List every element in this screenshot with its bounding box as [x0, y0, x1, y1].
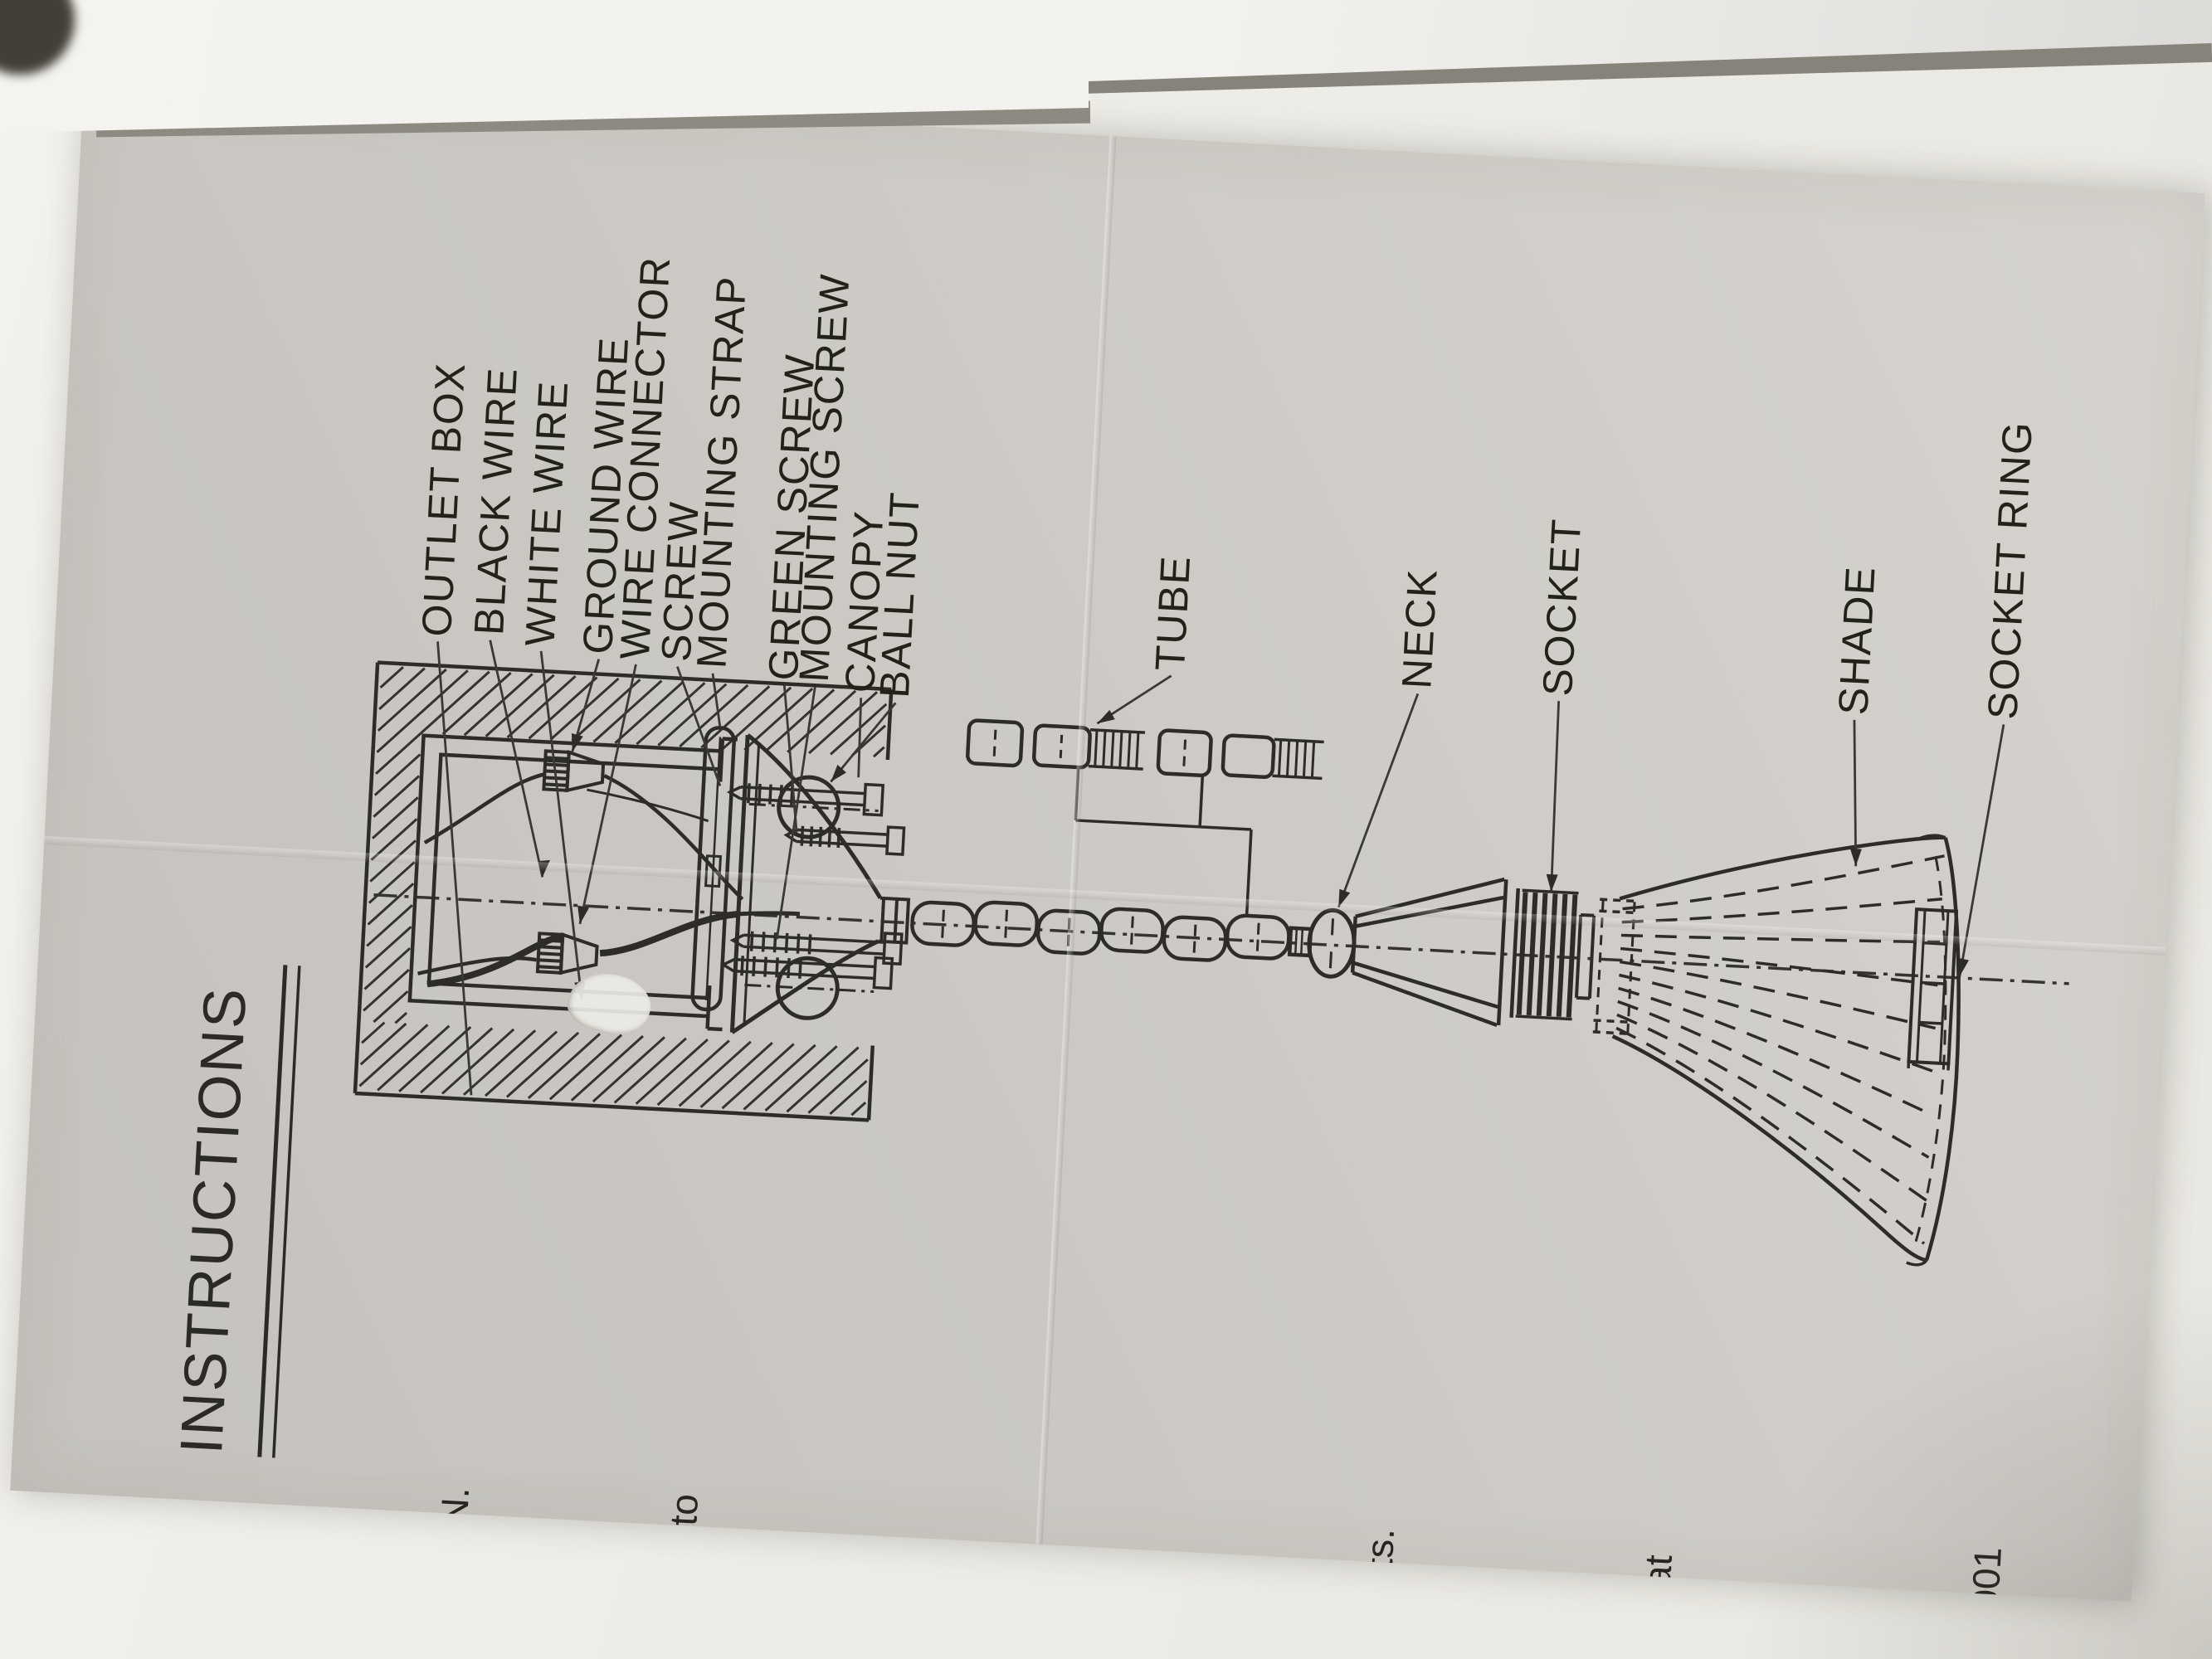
- leader-lines: [414, 637, 2004, 1174]
- label-socket: SOCKET: [1534, 517, 1590, 697]
- leader-wire-connector: [580, 662, 636, 926]
- fragment-001: 001: [1963, 1546, 2010, 1602]
- page-title: INSTRUCTIONS: [168, 985, 259, 1456]
- photo-of-instruction-sheet: INSTRUCTIONS: [0, 0, 2212, 1659]
- assembly-diagram: INSTRUCTIONS: [10, 82, 2205, 1602]
- leader-neck: [1338, 690, 1418, 911]
- label-neck: NECK: [1393, 567, 1446, 690]
- label-socket-ring: SOCKET RING: [1979, 420, 2041, 721]
- fragment-to: to: [661, 1493, 706, 1527]
- title-underline: [260, 965, 300, 1457]
- part-labels: OUTLET BOX BLACK WIRE WHITE WIRE GROUND …: [412, 245, 2046, 757]
- edge-text-fragments: N. to its. at 001: [432, 1466, 2010, 1602]
- label-ball-nut: BALL NUT: [871, 490, 928, 699]
- fragment-at: at: [1635, 1554, 1680, 1588]
- chain-drawing: [911, 898, 1311, 966]
- fragment-its: its.: [1357, 1527, 1402, 1578]
- leader-socket: [1549, 701, 1562, 892]
- instruction-sheet-paper: INSTRUCTIONS: [10, 82, 2205, 1602]
- label-black-wire: BLACK WIRE: [465, 366, 526, 636]
- fragment-n: N.: [432, 1486, 477, 1527]
- label-white-wire: WHITE WIRE: [516, 379, 577, 647]
- socket-drawing: [1350, 872, 1596, 1030]
- label-outlet-box: OUTLET BOX: [413, 361, 474, 637]
- label-shade: SHADE: [1830, 565, 1883, 716]
- fixture-centerline: [373, 895, 2068, 984]
- shade-flutes: [1606, 839, 1945, 1243]
- label-tube: TUBE: [1147, 554, 1199, 672]
- label-mounting-strap: MOUNTING STRAP: [688, 275, 755, 669]
